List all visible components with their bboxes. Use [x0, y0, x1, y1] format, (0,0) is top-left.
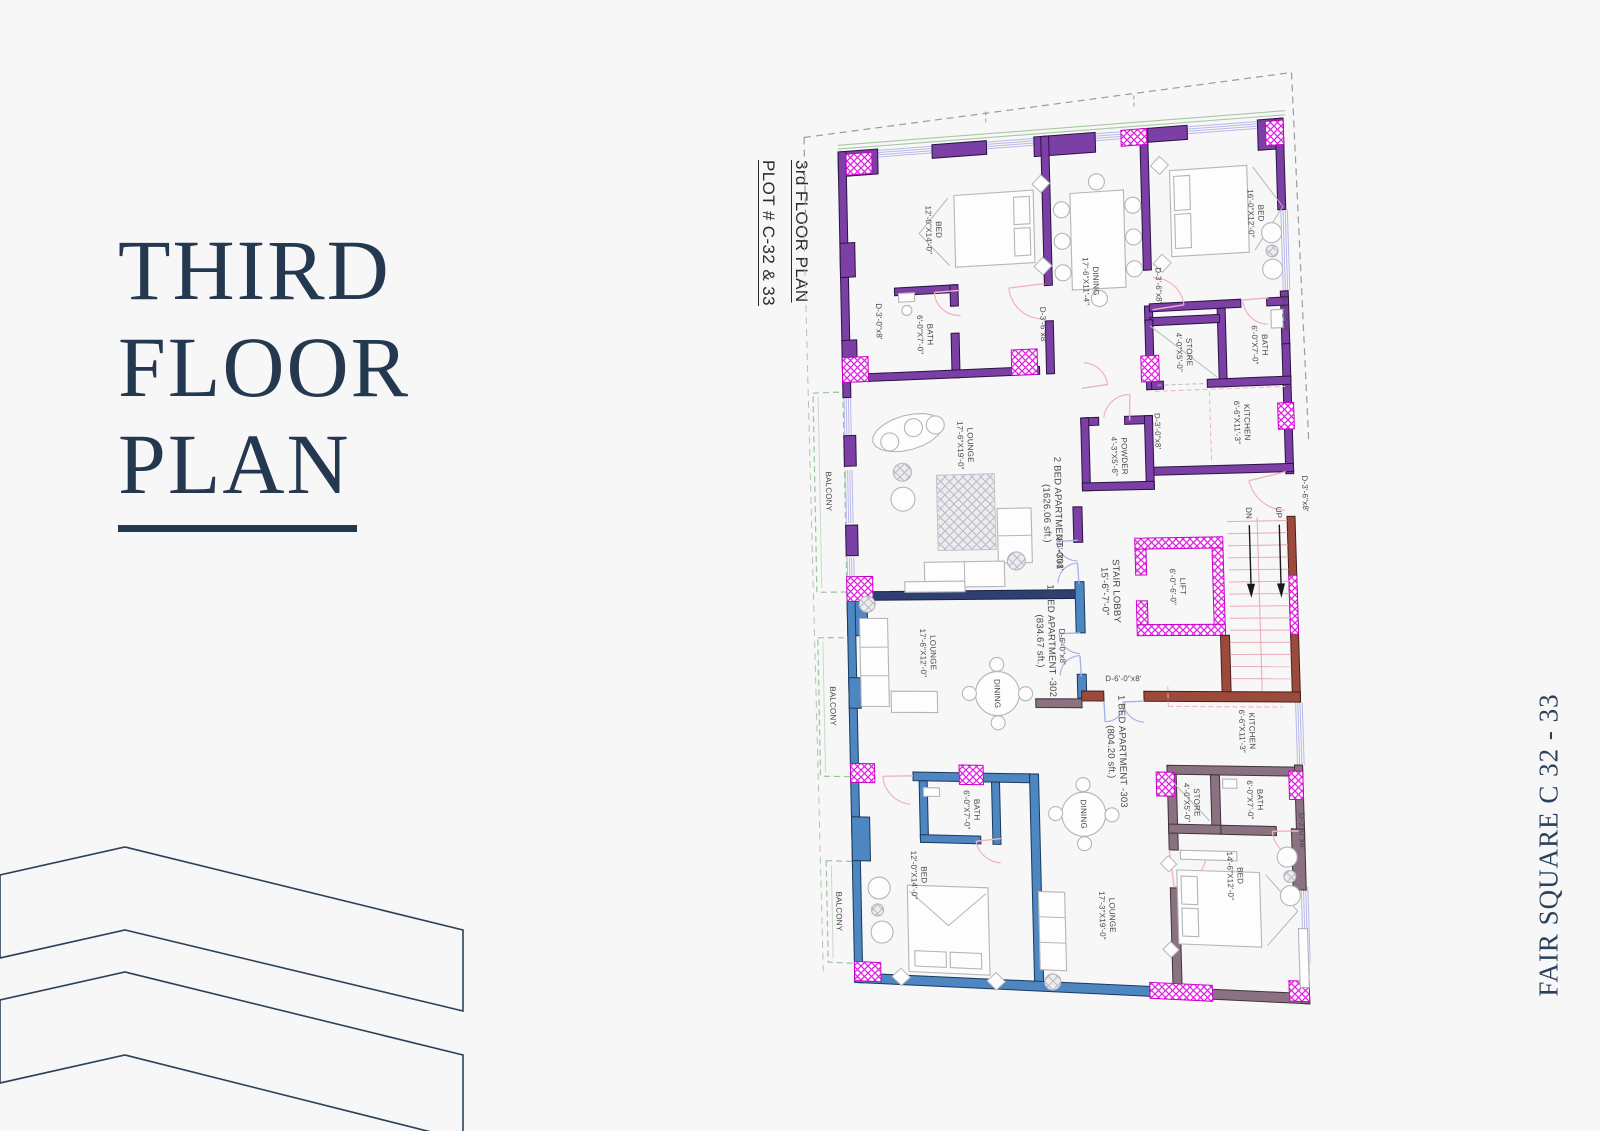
plan-label-8: BATH6'-0"X7'-0" — [1250, 325, 1270, 365]
page: { "title": {"line1": "THIRD", "line2": "… — [0, 0, 1600, 1131]
plan-label-18: LIFT6'-0"-6'-0" — [1168, 568, 1188, 605]
plan-label-15: BALCONY — [824, 472, 834, 512]
plan-label-0: BED12'-0"X14'-0" — [924, 205, 944, 254]
plan-label-37: DINING — [1079, 799, 1089, 828]
plan-label-25: DINING — [992, 679, 1002, 708]
plan-label-33: STORE4'-0"X5'-0" — [1182, 783, 1202, 823]
plan-label-28: BATH6'-0"X7'-0" — [962, 790, 982, 830]
floor-plan-svg: BED12'-0"X14'-0"BATH6'-0"X7'-0"D-3'-0"x8… — [0, 0, 1600, 1131]
plan-label-32: KITCHEN6'-6"X11'-3" — [1237, 709, 1257, 753]
plan-label-20: UP — [1274, 507, 1283, 519]
plan-label-13: LOUNGE17'-6"X19'-0" — [955, 421, 975, 470]
plan-label-34: BATH6'-0"X7'-0" — [1245, 780, 1265, 820]
plan-label-9: STORE4'-0"X5'-0" — [1174, 332, 1194, 372]
plan-label-17: STAIR LOBBY15'-6"-7'-0" — [1098, 559, 1122, 624]
plan-label-27: BALCONY — [828, 686, 838, 726]
plan-label-10: KITCHEN6'-6"X11'-3" — [1232, 400, 1252, 444]
plan-label-31: 1 BED APARTMENT -303(804.20 sft.) — [1104, 695, 1129, 808]
plan-label-3: D-3'-6"x8' — [1038, 307, 1048, 344]
plan-label-22: D-6'-0"x8' — [1057, 628, 1067, 665]
plan-label-1: BATH6'-0"X7'-0" — [915, 315, 935, 355]
plan-label-24: LOUNGE17'-6"X12'-0" — [918, 628, 938, 677]
plan-label-19: DN — [1244, 507, 1253, 519]
plan-label-12: POWDER4'-3"X5'-6" — [1109, 436, 1129, 476]
plan-label-23: D-6'-0"x8' — [1105, 674, 1142, 683]
plan-label-11: D-3'-0"x8' — [1152, 413, 1162, 450]
plan-label-26: 1 BED APARTMENT -302(834.67 sft.) — [1033, 584, 1058, 697]
plan-label-21: D-6'-0"x8' — [1055, 534, 1065, 571]
plan-label-38: LOUNGE17'-3"X19'-0" — [1097, 891, 1117, 940]
plan-label-2: D-3'-0"x8' — [874, 303, 884, 340]
plan-label-7: D-3'-0"x8' — [1280, 295, 1290, 332]
plan-label-30: BALCONY — [834, 892, 844, 932]
plan-label-5: D-3'-6"x8' — [1153, 267, 1163, 304]
plan-label-35: D-3'-0"x8' — [1297, 813, 1307, 850]
plan-label-16: D-3'-6"x8' — [1300, 475, 1310, 512]
